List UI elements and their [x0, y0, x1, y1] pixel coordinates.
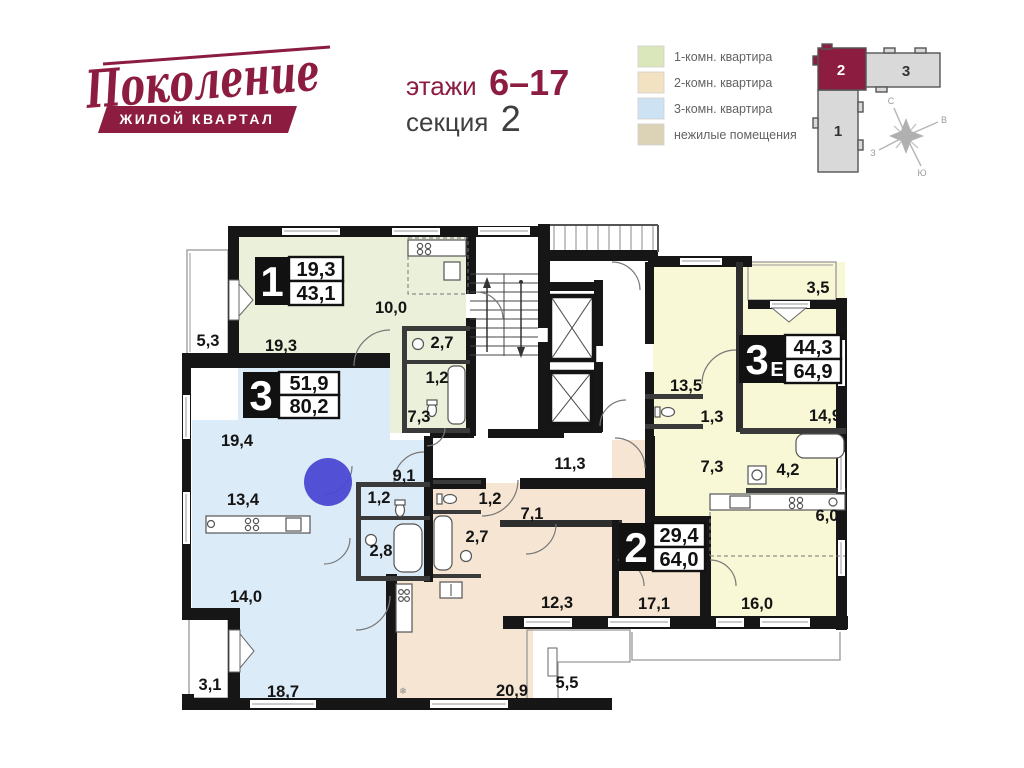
- room-area-label: 12,3: [541, 594, 573, 612]
- keymap-block-2-notch2: [813, 56, 818, 65]
- floors-value: 6–17: [489, 62, 569, 103]
- room-area-label: 4,2: [777, 461, 800, 479]
- logo: Поколение ЖИЛОЙ КВАРТАЛ: [82, 42, 330, 133]
- keymap-block-1-notch2: [858, 102, 863, 112]
- room-area-label: 19,4: [221, 432, 254, 450]
- keymap-block-3-notch2: [915, 48, 926, 53]
- apartment-type-number: 2: [624, 524, 647, 571]
- legend-swatch-1room: [638, 46, 664, 67]
- legend-item-2room: 2-комн. квартира: [638, 72, 772, 93]
- toilet-icon: [444, 495, 457, 504]
- room-area-label: 17,1: [638, 595, 670, 613]
- apartment-info-box-1[interactable]: 1 19,3 43,1: [255, 257, 343, 305]
- elevators: [550, 296, 594, 424]
- legend-item-nonresidential: нежилые помещения: [638, 124, 797, 145]
- apartment-type-suffix: Е: [770, 359, 783, 381]
- total-area-value: 80,2: [290, 396, 329, 418]
- room-area-label: 19,3: [265, 337, 297, 355]
- room-area-label: 1,2: [426, 369, 449, 387]
- sink-icon: [413, 339, 424, 350]
- room-area-label: 1,3: [701, 408, 724, 426]
- room-area-label: 13,5: [670, 377, 702, 395]
- keymap-block-3-label: 3: [902, 63, 910, 80]
- total-area-value: 64,9: [794, 361, 833, 383]
- room-area-label: 2,7: [466, 528, 489, 546]
- legend-swatch-3room: [638, 98, 664, 119]
- bathtub-icon: [796, 434, 844, 458]
- stair-down-arrow: [517, 347, 525, 358]
- svg-text:секция 2: секция 2: [406, 98, 521, 139]
- apartment-type-number: 3: [249, 372, 272, 419]
- keymap-block-3-notch3: [876, 87, 887, 92]
- click-marker: [304, 458, 352, 506]
- section-value: 2: [501, 98, 521, 139]
- vent-icon: ❄: [399, 686, 407, 696]
- compass-west-label: З: [870, 148, 875, 158]
- page-title: этажи 6–17 секция 2: [406, 62, 569, 139]
- apartment-type-number: 3: [745, 336, 768, 383]
- room-area-label: 10,0: [375, 299, 407, 317]
- legend-label-1room: 1-комн. квартира: [674, 50, 772, 64]
- living-area-value: 19,3: [297, 259, 336, 281]
- legend: 1-комн. квартира 2-комн. квартира 3-комн…: [638, 46, 797, 145]
- room-area-label: 14,0: [230, 588, 262, 606]
- room-area-label: 2,8: [370, 542, 393, 560]
- section-label: секция: [406, 107, 488, 137]
- legend-label-2room: 2-комн. квартира: [674, 76, 772, 90]
- room-area-label: 18,7: [267, 683, 299, 701]
- room-area-label: 14,9: [809, 407, 841, 425]
- building-keymap: 1 2 3 С В З Ю: [813, 44, 947, 178]
- keymap-block-2-notch: [822, 44, 832, 49]
- total-area-value: 64,0: [660, 549, 699, 571]
- bathtub-icon: [434, 516, 452, 570]
- apartment-info-box-3[interactable]: 3 51,9 80,2: [243, 372, 339, 419]
- bathtub-icon: [394, 524, 422, 572]
- legend-item-3room: 3-комн. квартира: [638, 98, 772, 119]
- compass-east-label: В: [941, 115, 947, 125]
- room-area-label: 7,1: [521, 505, 544, 523]
- bathtub-icon: [448, 366, 465, 424]
- room-area-label: 16,0: [741, 595, 773, 613]
- legend-swatch-nonresidential: [638, 124, 664, 145]
- room-area-label: 9,1: [393, 467, 416, 485]
- logo-band-text: ЖИЛОЙ КВАРТАЛ: [119, 110, 275, 127]
- room-area-label: 20,9: [496, 682, 528, 700]
- room-area-label: 7,3: [701, 458, 724, 476]
- apartment-info-box-2[interactable]: 2 29,4 64,0: [619, 523, 705, 571]
- floors-label: этажи: [406, 71, 477, 101]
- room-area-label: 13,4: [227, 491, 260, 509]
- compass-south-label: Ю: [917, 168, 926, 178]
- staircase: [470, 274, 538, 358]
- keymap-block-1-notch: [813, 118, 818, 128]
- living-area-value: 29,4: [660, 525, 700, 547]
- floorplan-page: Поколение ЖИЛОЙ КВАРТАЛ этажи 6–17 секци…: [0, 0, 1024, 768]
- corridor-area-label: 11,3: [554, 455, 585, 473]
- keymap-block-3-notch: [884, 48, 895, 53]
- room-area-label: 3,5: [807, 279, 830, 297]
- room-area-label: 1,2: [479, 490, 502, 508]
- apartment-info-box-3e[interactable]: 3 Е 44,3 64,9: [739, 335, 841, 383]
- compass-rose: [879, 108, 938, 166]
- room-area-label: 7,3: [408, 408, 431, 426]
- legend-label-3room: 3-комн. квартира: [674, 102, 772, 116]
- living-area-value: 44,3: [794, 337, 833, 359]
- apartment-type-number: 1: [260, 258, 283, 305]
- legend-item-1room: 1-комн. квартира: [638, 46, 772, 67]
- stair-loggia: [550, 225, 658, 252]
- room-area-label: 6,0: [816, 507, 839, 525]
- washer-icon: [752, 470, 762, 480]
- total-area-value: 43,1: [297, 283, 336, 305]
- room-area-label: 3,1: [199, 676, 222, 694]
- balcony-5-5: [527, 630, 630, 700]
- room-area-label: 5,5: [556, 674, 579, 692]
- compass-north-label: С: [888, 96, 895, 106]
- room-area-label: 2,7: [431, 334, 454, 352]
- living-area-value: 51,9: [290, 373, 329, 395]
- keymap-block-1-notch3: [858, 140, 863, 150]
- legend-label-nonresidential: нежилые помещения: [674, 128, 797, 142]
- svg-text:этажи 6–17: этажи 6–17: [406, 62, 569, 103]
- french-balcony-railing: [632, 632, 840, 660]
- legend-swatch-2room: [638, 72, 664, 93]
- room-area-label: 5,3: [197, 332, 220, 350]
- keymap-block-1-label: 1: [834, 123, 842, 140]
- keymap-block-2-label: 2: [837, 62, 845, 79]
- room-area-label: 1,2: [368, 489, 391, 507]
- toilet-icon: [662, 408, 675, 417]
